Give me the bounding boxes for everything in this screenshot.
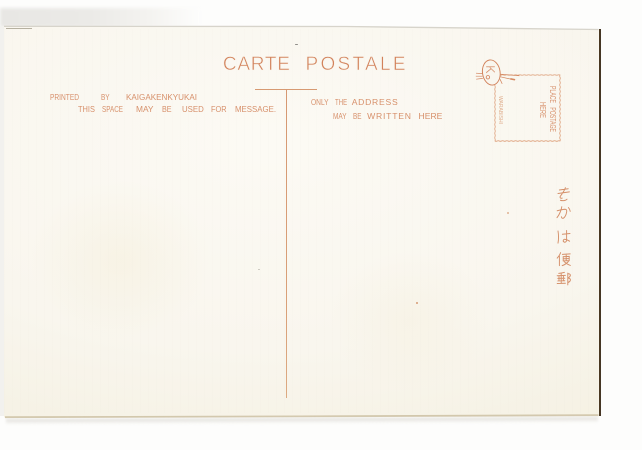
svg-text:K: K [483, 65, 498, 74]
